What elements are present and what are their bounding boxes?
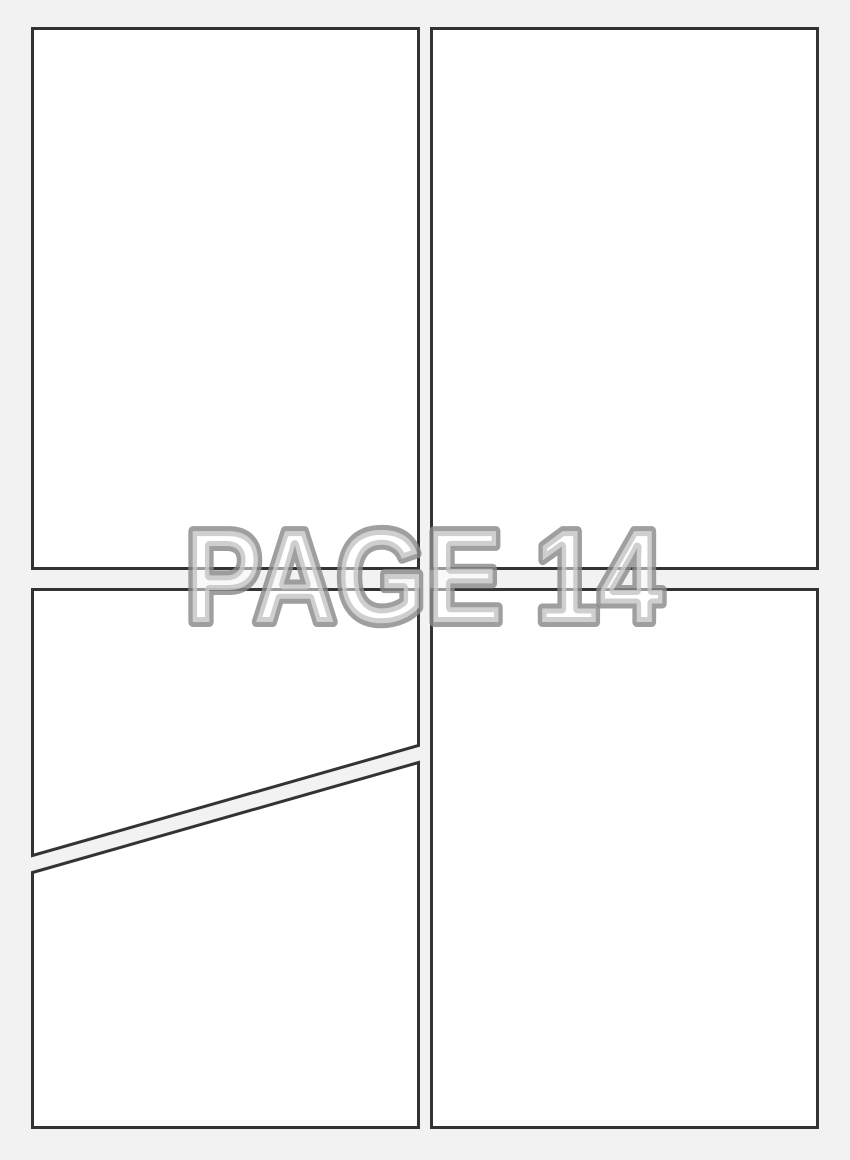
panel-top-right bbox=[430, 27, 819, 570]
panel-bottom-left-group bbox=[31, 588, 420, 1129]
comic-page-template: PAGE 14 bbox=[0, 0, 850, 1160]
panel-top-left bbox=[31, 27, 420, 570]
panel-bottom-right bbox=[430, 588, 819, 1129]
